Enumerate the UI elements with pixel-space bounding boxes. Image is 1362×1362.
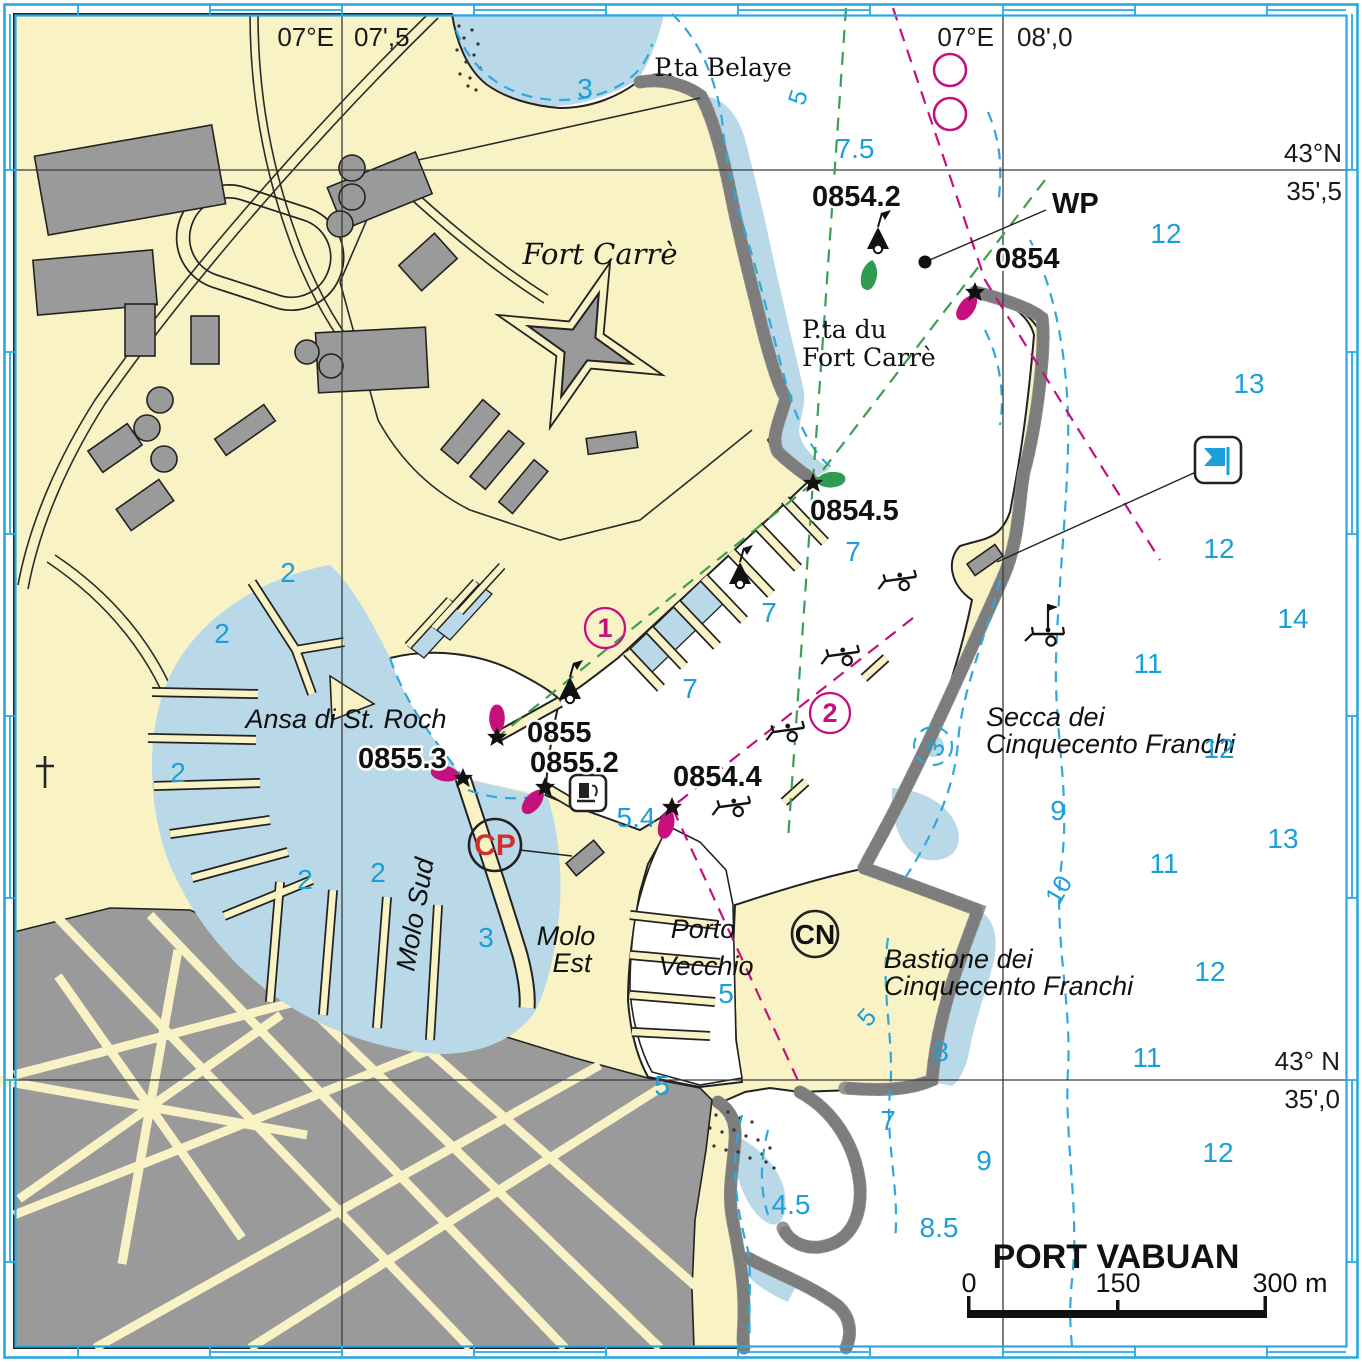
svg-text:2: 2: [170, 757, 186, 788]
label-0854-2: 0854.2: [812, 181, 901, 213]
svg-text:4.5: 4.5: [772, 1189, 811, 1220]
svg-text:7: 7: [682, 673, 698, 704]
berth-number-1: 1: [597, 613, 612, 643]
place-ansa-di-st-roch: Ansa di St. Roch: [243, 704, 446, 734]
label-0855: 0855: [527, 717, 592, 749]
svg-text:11: 11: [1149, 848, 1178, 879]
svg-text:5: 5: [718, 978, 734, 1009]
svg-text:12: 12: [1203, 733, 1234, 764]
lon-tick-right: 08',0: [1017, 22, 1073, 52]
lat-tick-top: 35',5: [1286, 176, 1342, 206]
place-molo-est: Molo: [537, 921, 596, 951]
chart-canvas: 07°E 07',5 07°E 08',0 43°N 35',5 43° N 3…: [0, 0, 1362, 1362]
label-0854-5: 0854.5: [810, 495, 899, 527]
cn-label: CN: [795, 919, 835, 950]
label-0855-2: 0855.2: [530, 747, 619, 779]
svg-text:7: 7: [761, 597, 777, 628]
svg-text:5.4: 5.4: [617, 802, 656, 833]
place-bastione: Cinquecento Franchi: [884, 971, 1134, 1001]
place-secca: Cinquecento Franchi: [986, 729, 1236, 759]
place-pta-du-fort-carre: P.ta du: [802, 315, 887, 344]
lon-label-left: 07°E: [277, 22, 334, 52]
svg-text:2: 2: [370, 857, 386, 888]
svg-text:2: 2: [214, 618, 230, 649]
svg-text:12: 12: [1202, 1137, 1233, 1168]
place-molo-est: Est: [552, 948, 593, 978]
lon-tick-left: 07',5: [354, 22, 410, 52]
svg-text:7: 7: [845, 536, 861, 567]
svg-text:3: 3: [577, 73, 593, 104]
scale-label-300m: 300 m: [1252, 1268, 1327, 1298]
svg-text:13: 13: [1267, 823, 1298, 854]
svg-text:9: 9: [1050, 795, 1066, 826]
svg-text:8: 8: [933, 1036, 949, 1067]
berth-number-2: 2: [822, 698, 837, 728]
svg-text:11: 11: [1132, 1042, 1161, 1073]
svg-text:8.5: 8.5: [920, 1212, 959, 1243]
svg-text:14: 14: [1277, 603, 1308, 634]
svg-text:5: 5: [654, 1070, 670, 1101]
lat-tick-bottom: 35',0: [1284, 1084, 1340, 1114]
svg-text:12: 12: [1203, 533, 1234, 564]
fuel-station-icon: [570, 775, 606, 811]
nautical-chart: 07°E 07',5 07°E 08',0 43°N 35',5 43° N 3…: [0, 0, 1362, 1362]
place-bastione: Bastione dei: [884, 944, 1034, 974]
lat-label-top: 43°N: [1284, 138, 1342, 168]
scale-label-150: 150: [1095, 1268, 1140, 1298]
svg-text:9: 9: [976, 1145, 992, 1176]
svg-text:11: 11: [1133, 648, 1162, 679]
waypoint-dot: [919, 256, 932, 269]
scale-label-0: 0: [961, 1268, 976, 1298]
svg-text:7: 7: [880, 1105, 896, 1136]
svg-text:12: 12: [1150, 218, 1181, 249]
place-porto-vecchio: Porto: [671, 914, 736, 944]
lon-label-right: 07°E: [937, 22, 994, 52]
lat-label-bottom: 43° N: [1275, 1046, 1340, 1076]
svg-text:12: 12: [1194, 956, 1225, 987]
label-0854-4: 0854.4: [673, 761, 762, 793]
label-0854: 0854: [995, 243, 1060, 275]
place-pta-belaye: P.ta Belaye: [654, 53, 792, 82]
place-porto-vecchio: Vecchio: [658, 951, 753, 981]
svg-text:13: 13: [1233, 368, 1264, 399]
svg-text:2: 2: [297, 864, 313, 895]
svg-text:7.5: 7.5: [836, 133, 875, 164]
svg-text:3: 3: [478, 922, 494, 953]
place-secca: Secca dei: [986, 702, 1106, 732]
svg-text:2: 2: [280, 557, 296, 588]
place-fort-carre: Fort Carrè: [521, 237, 677, 271]
label-0855-3: 0855.3: [358, 743, 447, 775]
label-wp: WP: [1052, 188, 1099, 220]
cp-label: CP: [474, 829, 516, 862]
place-pta-du-fort-carre: Fort Carrè: [802, 343, 936, 372]
